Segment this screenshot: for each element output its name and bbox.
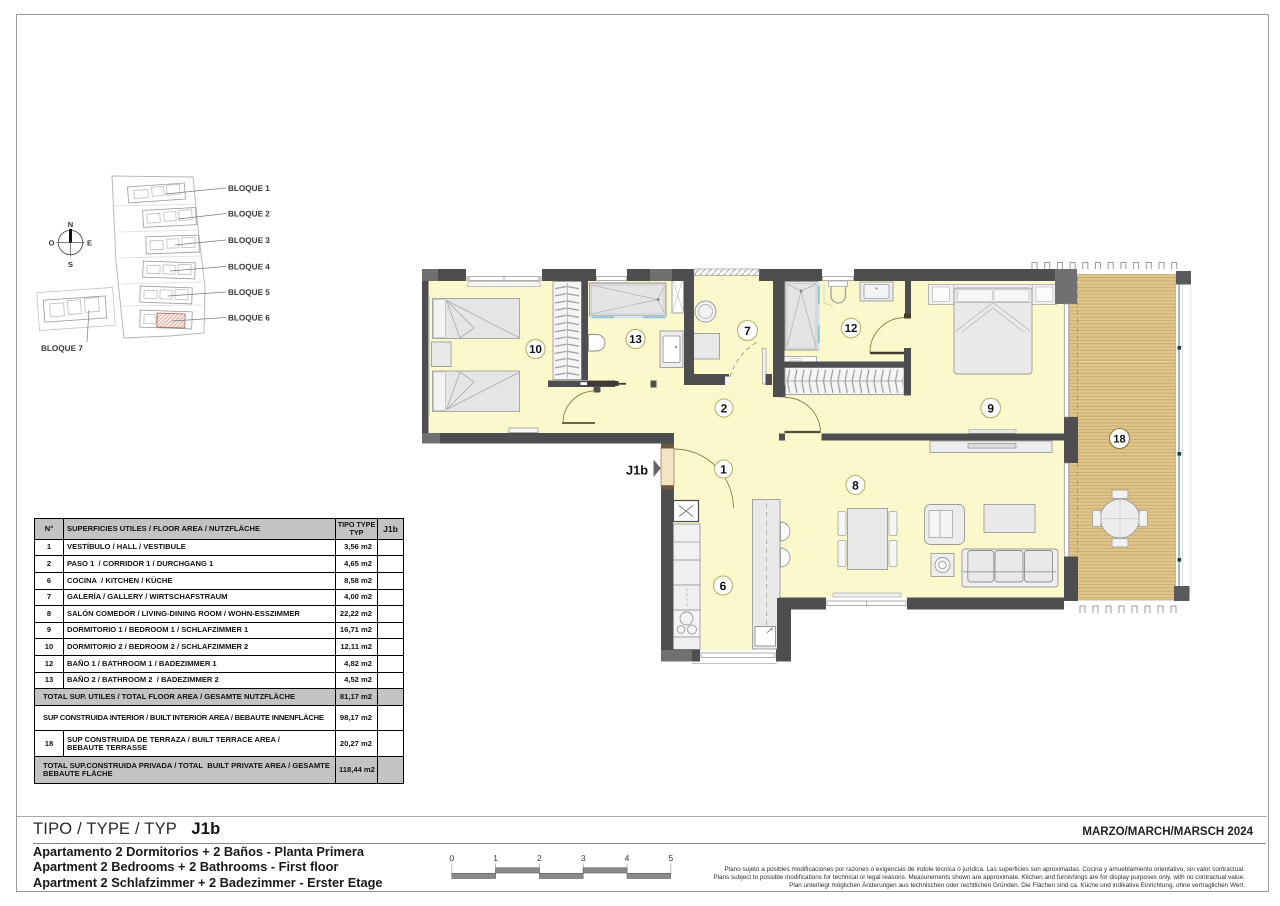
svg-text:2: 2 [721, 402, 728, 416]
svg-text:BLOQUE 6: BLOQUE 6 [228, 314, 270, 323]
svg-text:BLOQUE 4: BLOQUE 4 [228, 263, 270, 272]
svg-text:3: 3 [581, 853, 586, 863]
svg-text:4: 4 [625, 853, 630, 863]
svg-text:10: 10 [529, 344, 542, 356]
svg-text:BLOQUE 1: BLOQUE 1 [228, 184, 270, 193]
svg-text:BLOQUE 5: BLOQUE 5 [228, 288, 270, 297]
svg-text:J1b: J1b [626, 463, 648, 478]
svg-text:2: 2 [537, 853, 542, 863]
svg-text:BLOQUE 7: BLOQUE 7 [41, 344, 83, 353]
svg-text:9: 9 [987, 402, 994, 416]
svg-text:8: 8 [852, 479, 859, 493]
svg-text:6: 6 [720, 579, 727, 593]
svg-text:N: N [68, 220, 73, 229]
svg-text:0: 0 [449, 853, 454, 863]
svg-text:12: 12 [845, 323, 858, 335]
svg-text:BLOQUE 3: BLOQUE 3 [228, 236, 270, 245]
svg-text:13: 13 [629, 334, 642, 346]
svg-text:1: 1 [493, 853, 498, 863]
svg-text:18: 18 [1113, 434, 1125, 446]
svg-text:5: 5 [668, 853, 673, 863]
svg-text:BLOQUE 2: BLOQUE 2 [228, 210, 270, 219]
svg-text:S: S [68, 260, 73, 269]
svg-text:1: 1 [720, 463, 727, 477]
svg-text:7: 7 [744, 324, 751, 338]
svg-text:E: E [87, 239, 92, 248]
svg-text:O: O [49, 239, 55, 248]
